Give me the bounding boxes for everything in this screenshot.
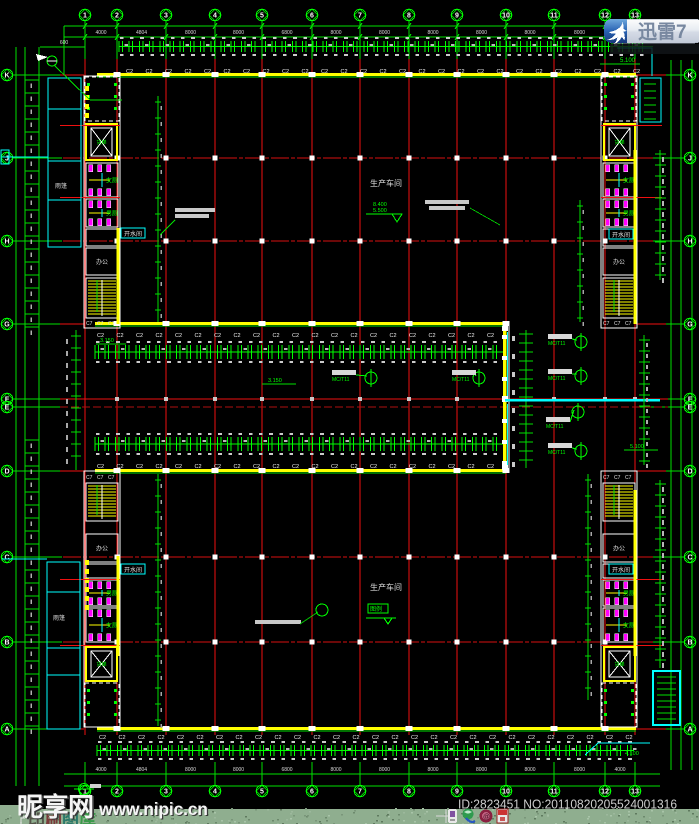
svg-text:C7: C7 [614,475,621,481]
svg-text:C2: C2 [255,735,262,741]
svg-text:C2: C2 [273,464,280,470]
svg-text:C2: C2 [117,333,124,339]
svg-text:男厕: 男厕 [106,211,118,218]
svg-text:6: 6 [310,13,314,20]
svg-text:C2: C2 [399,69,406,75]
svg-text:C2: C2 [458,69,465,75]
svg-text:9: 9 [455,789,459,796]
svg-text:ID:2823451 NO:2011082020552400: ID:2823451 NO:20110820205524001316 [458,797,677,812]
svg-text:4804: 4804 [136,767,147,773]
svg-text:办公: 办公 [96,545,108,553]
svg-text:4: 4 [213,13,217,20]
svg-text:C2: C2 [528,735,535,741]
svg-text:C7: C7 [625,321,632,327]
svg-text:C2: C2 [294,735,301,741]
svg-text:D: D [687,469,692,476]
svg-text:C2: C2 [411,735,418,741]
svg-text:4000: 4000 [614,767,625,773]
svg-text:C: C [4,555,9,562]
svg-text:C2: C2 [548,735,555,741]
svg-text:C2: C2 [136,464,143,470]
svg-text:男厕: 男厕 [623,211,635,218]
svg-text:C2: C2 [177,735,184,741]
svg-text:MC/T11: MC/T11 [546,424,564,430]
svg-text:12: 12 [601,13,609,20]
svg-text:C2: C2 [351,333,358,339]
svg-text:C2: C2 [594,69,601,75]
svg-text:C2: C2 [165,69,172,75]
svg-text:B: B [687,640,692,647]
svg-text:8000: 8000 [185,30,196,36]
svg-text:@: @ [483,814,490,821]
svg-text:5: 5 [260,13,264,20]
svg-text:C2: C2 [633,69,640,75]
svg-text:C2: C2 [292,333,299,339]
svg-text:C2: C2 [156,333,163,339]
svg-text:C2: C2 [175,464,182,470]
svg-text:2: 2 [115,789,119,796]
svg-text:C2: C2 [214,464,221,470]
svg-text:C7: C7 [614,321,621,327]
svg-text:C2: C2 [477,69,484,75]
svg-text:货梯: 货梯 [96,661,106,668]
svg-text:5: 5 [260,789,264,796]
svg-text:C2: C2 [516,69,523,75]
svg-text:开水间: 开水间 [124,566,142,574]
svg-text:开水间: 开水间 [612,566,630,574]
svg-text:10: 10 [502,13,510,20]
svg-text:C2: C2 [195,464,202,470]
svg-text:C2: C2 [224,69,231,75]
svg-text:C2: C2 [429,464,436,470]
svg-text:C2: C2 [253,464,260,470]
svg-text:办公: 办公 [96,258,108,266]
svg-text:E: E [688,405,693,412]
svg-text:MC/T11: MC/T11 [332,377,350,383]
svg-text:C2: C2 [536,69,543,75]
svg-text:C2: C2 [409,333,416,339]
svg-text:C2: C2 [448,333,455,339]
svg-text:C2: C2 [204,69,211,75]
svg-text:8: 8 [407,13,411,20]
svg-text:8000: 8000 [233,30,244,36]
svg-text:C2: C2 [331,333,338,339]
svg-text:C7: C7 [86,475,93,481]
svg-text:C2: C2 [587,735,594,741]
svg-text:C2: C2 [370,333,377,339]
svg-text:C7: C7 [97,475,104,481]
svg-text:C2: C2 [448,464,455,470]
svg-text:女厕: 女厕 [106,622,118,630]
svg-text:C2: C2 [333,735,340,741]
svg-text:女厕: 女厕 [623,622,635,630]
svg-text:1: 1 [83,13,87,20]
svg-text:C2: C2 [292,464,299,470]
svg-text:8000: 8000 [476,767,487,773]
svg-text:13: 13 [631,789,639,796]
svg-text:8000: 8000 [427,767,438,773]
svg-text:8000: 8000 [233,767,244,773]
svg-text:男厕: 男厕 [623,591,635,598]
svg-text:C2: C2 [409,464,416,470]
svg-text:8: 8 [407,789,411,796]
svg-text:13: 13 [631,13,639,20]
svg-text:C2: C2 [575,69,582,75]
svg-text:C2: C2 [468,464,475,470]
svg-text:4: 4 [213,789,217,796]
svg-text:3.150: 3.150 [268,378,282,384]
svg-text:C2: C2 [450,735,457,741]
svg-text:J: J [688,156,692,163]
svg-text:C2: C2 [282,69,289,75]
svg-text:C2: C2 [234,464,241,470]
svg-text:C2: C2 [146,69,153,75]
svg-text:女厕: 女厕 [623,177,635,185]
svg-text:雨篷: 雨篷 [55,182,67,190]
svg-text:C2: C2 [429,333,436,339]
svg-text:8000: 8000 [524,30,535,36]
svg-text:5.500: 5.500 [373,208,387,214]
svg-text:8000: 8000 [330,767,341,773]
svg-text:C2: C2 [185,69,192,75]
svg-text:C2: C2 [234,333,241,339]
svg-text:MC/T11: MC/T11 [548,450,566,456]
svg-text:C2: C2 [468,333,475,339]
svg-text:2: 2 [115,13,119,20]
svg-text:MC/T11: MC/T11 [548,341,566,347]
svg-text:C2: C2 [380,69,387,75]
svg-text:C2: C2 [321,69,328,75]
svg-text:C7: C7 [108,475,115,481]
svg-text:H: H [687,239,692,246]
svg-text:H: H [4,239,9,246]
svg-text:3.150: 3.150 [100,338,114,344]
svg-text:G: G [687,322,693,329]
svg-text:C2: C2 [197,735,204,741]
svg-text:C2: C2 [216,735,223,741]
svg-text:C2: C2 [470,735,477,741]
svg-text:4804: 4804 [136,30,147,36]
svg-text:C2: C2 [390,464,397,470]
svg-text:C2: C2 [126,69,133,75]
svg-text:C2: C2 [351,464,358,470]
svg-text:8000: 8000 [574,30,585,36]
svg-text:女厕: 女厕 [106,177,118,185]
svg-text:C2: C2 [312,333,319,339]
svg-text:昵享网: 昵享网 [17,792,94,822]
svg-text:C2: C2 [626,735,633,741]
svg-text:C2: C2 [312,464,319,470]
svg-text:K: K [687,73,692,80]
svg-text:办公: 办公 [613,545,625,553]
svg-text:C2: C2 [314,735,321,741]
svg-text:C2: C2 [360,69,367,75]
svg-text:8000: 8000 [185,767,196,773]
svg-text:C7: C7 [108,321,115,327]
svg-text:6800: 6800 [281,30,292,36]
svg-text:C2: C2 [431,735,438,741]
svg-text:B: B [4,640,9,647]
svg-text:图例: 图例 [370,605,382,613]
svg-text:4.100: 4.100 [625,751,639,757]
svg-text:9: 9 [455,13,459,20]
svg-text:C2: C2 [236,735,243,741]
svg-text:生产车间: 生产车间 [370,582,402,592]
svg-text:8000: 8000 [427,30,438,36]
svg-text:生产车间: 生产车间 [370,178,402,188]
svg-text:C2: C2 [497,69,504,75]
svg-text:C2: C2 [97,464,104,470]
svg-text:C2: C2 [158,735,165,741]
svg-text:K: K [4,73,9,80]
svg-text:8000: 8000 [379,30,390,36]
svg-text:C2: C2 [119,735,126,741]
svg-text:货梯: 货梯 [614,661,624,668]
svg-text:C2: C2 [263,69,270,75]
svg-text:开水间: 开水间 [124,230,142,238]
svg-text:C7: C7 [603,321,610,327]
svg-text:8000: 8000 [574,767,585,773]
svg-text:C2: C2 [353,735,360,741]
svg-text:C2: C2 [509,735,516,741]
svg-text:C2: C2 [214,333,221,339]
svg-text:迅雷7: 迅雷7 [638,21,687,43]
svg-text:5.100: 5.100 [620,58,636,64]
svg-text:C2: C2 [175,333,182,339]
svg-text:12: 12 [601,789,609,796]
svg-text:11: 11 [550,789,558,796]
svg-text:3: 3 [164,789,168,796]
svg-text:C2: C2 [606,735,613,741]
svg-text:6800: 6800 [281,767,292,773]
svg-text:C2: C2 [156,464,163,470]
svg-text:C2: C2 [117,464,124,470]
svg-text:C2: C2 [341,69,348,75]
svg-text:C2: C2 [392,735,399,741]
svg-text:7: 7 [358,789,362,796]
svg-text:C2: C2 [489,735,496,741]
svg-text:8000: 8000 [524,767,535,773]
svg-text:8000: 8000 [379,767,390,773]
svg-text:C2: C2 [567,735,574,741]
svg-text:C: C [687,555,692,562]
svg-text:3: 3 [164,13,168,20]
svg-text:C2: C2 [614,69,621,75]
svg-text:货梯: 货梯 [96,139,106,146]
svg-text:C2: C2 [372,735,379,741]
svg-text:雨篷: 雨篷 [53,614,65,622]
svg-text:8000: 8000 [476,30,487,36]
svg-text:C2: C2 [487,333,494,339]
svg-text:C2: C2 [99,735,106,741]
svg-text:C2: C2 [273,333,280,339]
svg-text:10: 10 [502,789,510,796]
svg-text:4000: 4000 [95,30,106,36]
svg-text:C2: C2 [370,464,377,470]
svg-text:www.nipic.cn: www.nipic.cn [98,799,208,819]
svg-text:C7: C7 [625,475,632,481]
svg-text:6: 6 [310,789,314,796]
svg-text:7: 7 [358,13,362,20]
svg-text:A: A [4,727,9,734]
svg-text:600: 600 [60,40,69,46]
svg-text:C2: C2 [243,69,250,75]
svg-text:5.100: 5.100 [630,444,644,450]
svg-text:D: D [4,469,9,476]
svg-text:11: 11 [550,13,558,20]
svg-text:C2: C2 [419,69,426,75]
svg-text:C2: C2 [390,333,397,339]
svg-text:C2: C2 [136,333,143,339]
svg-text:C2: C2 [555,69,562,75]
svg-text:开水间: 开水间 [612,231,630,239]
svg-text:A: A [687,727,692,734]
svg-text:C2: C2 [195,333,202,339]
svg-text:C2: C2 [487,464,494,470]
svg-text:C7: C7 [86,321,93,327]
svg-text:MC/T11: MC/T11 [548,376,566,382]
svg-text:C2: C2 [138,735,145,741]
svg-text:8000: 8000 [330,30,341,36]
svg-text:C2: C2 [302,69,309,75]
svg-text:4000: 4000 [95,767,106,773]
svg-text:MC/T11: MC/T11 [452,377,470,383]
svg-text:C2: C2 [331,464,338,470]
svg-text:货梯: 货梯 [614,139,624,146]
svg-text:办公: 办公 [613,258,625,266]
svg-text:C7: C7 [603,475,610,481]
svg-text:G: G [4,322,10,329]
svg-text:E: E [5,405,10,412]
svg-text:C2: C2 [438,69,445,75]
svg-text:C7: C7 [97,321,104,327]
svg-text:C2: C2 [253,333,260,339]
svg-text:男厕: 男厕 [106,591,118,598]
svg-text:C2: C2 [275,735,282,741]
